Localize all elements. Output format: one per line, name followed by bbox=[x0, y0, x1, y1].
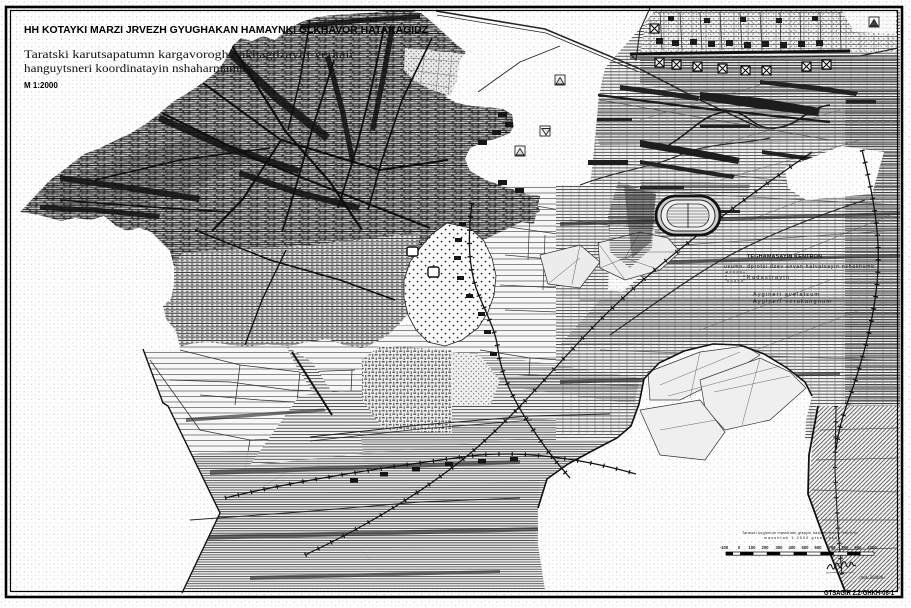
svg-text:M 1:2000: M 1:2000 bbox=[24, 81, 58, 90]
svg-text:300: 300 bbox=[776, 545, 784, 550]
svg-text:400: 400 bbox=[789, 545, 797, 550]
svg-text:500: 500 bbox=[802, 545, 810, 550]
svg-text:900: 900 bbox=[855, 545, 863, 550]
svg-text:GTSAGIR 2.2-GHKH-08-1: GTSAGIR 2.2-GHKH-08-1 bbox=[824, 588, 894, 597]
svg-text:TEGHAMASAYIN KENTRON: TEGHAMASAYIN KENTRON bbox=[747, 254, 822, 260]
svg-text:Aygineri avelatsum: Aygineri avelatsum bbox=[753, 292, 819, 298]
svg-text:800: 800 bbox=[842, 545, 850, 550]
svg-text:100: 100 bbox=[749, 545, 757, 550]
svg-text:-100: -100 bbox=[720, 545, 729, 550]
svg-text:600: 600 bbox=[815, 545, 823, 550]
svg-text:700: 700 bbox=[829, 545, 837, 550]
svg-text:usumn. dprotsi dzev anvan hatv: usumn. dprotsi dzev anvan hatvatsayin ns… bbox=[724, 264, 874, 270]
svg-text:Taratski karutsapatumn kargavo: Taratski karutsapatumn kargavorogh nakha… bbox=[24, 49, 354, 61]
svg-text:hanguytsneri koordinatayin nsh: hanguytsneri koordinatayin nshaharmamb bbox=[24, 63, 246, 75]
svg-text:200: 200 bbox=[762, 545, 770, 550]
svg-text:1000: 1000 bbox=[867, 545, 877, 550]
svg-text:Taratski koghmum masshtabi gts: Taratski koghmum masshtabi gtsayin bazha… bbox=[742, 531, 858, 535]
svg-text:Aygineri verakangnum: Aygineri verakangnum bbox=[753, 299, 831, 305]
svg-text:HH KOTAYKI MARZI JRVEZH GYUGHA: HH KOTAYKI MARZI JRVEZH GYUGHAKAN HAMAYN… bbox=[24, 24, 429, 36]
svg-text:masshtab 1:2000 gtsagrakan: masshtab 1:2000 gtsagrakan bbox=[764, 536, 840, 540]
